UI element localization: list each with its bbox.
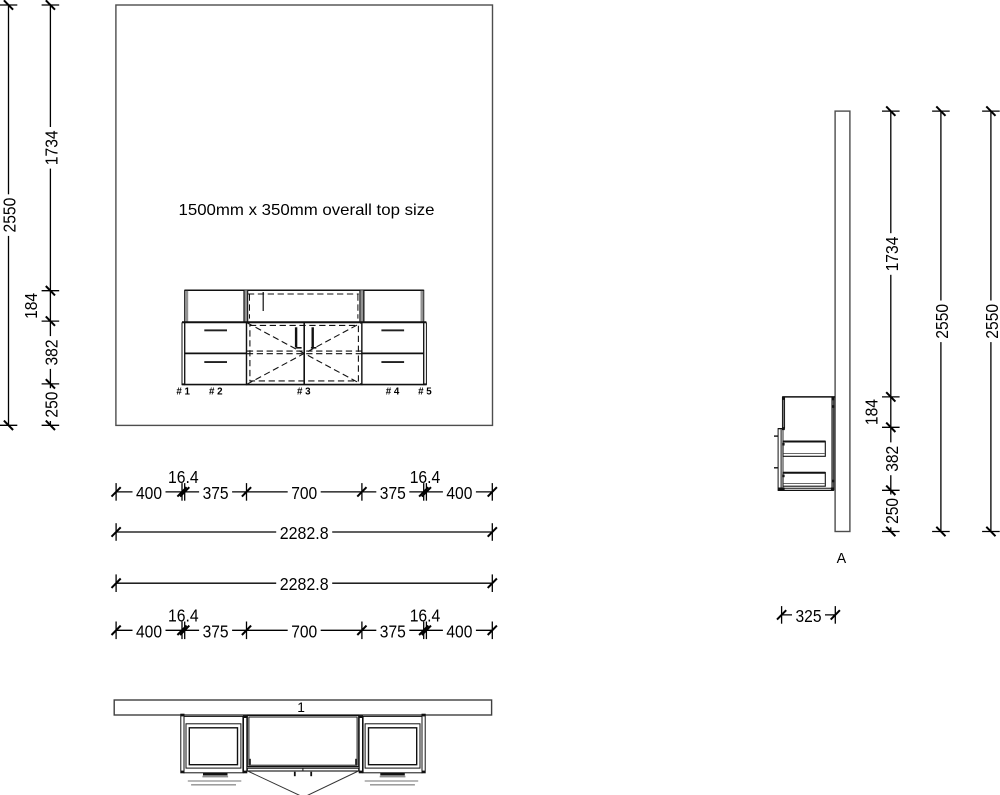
svg-text:16.4: 16.4 (168, 605, 199, 625)
svg-text:400: 400 (136, 621, 162, 641)
svg-text:# 2: # 2 (209, 386, 223, 397)
svg-text:# 5: # 5 (418, 386, 432, 397)
svg-text:400: 400 (446, 483, 472, 503)
svg-text:250: 250 (41, 391, 61, 417)
svg-text:375: 375 (380, 483, 406, 503)
svg-text:16.4: 16.4 (410, 605, 441, 625)
svg-text:700: 700 (291, 483, 317, 503)
svg-text:16.4: 16.4 (410, 467, 441, 487)
svg-text:700: 700 (291, 621, 317, 641)
svg-text:1734: 1734 (882, 236, 902, 271)
svg-text:A: A (837, 551, 847, 567)
svg-text:382: 382 (41, 340, 61, 366)
svg-text:375: 375 (380, 621, 406, 641)
svg-text:2550: 2550 (932, 304, 952, 339)
svg-text:1500mm x 350mm overall top siz: 1500mm x 350mm overall top size (179, 202, 435, 219)
svg-text:2282.8: 2282.8 (280, 523, 329, 543)
svg-text:375: 375 (203, 621, 229, 641)
svg-text:1734: 1734 (41, 130, 61, 165)
svg-text:382: 382 (882, 446, 902, 472)
svg-text:400: 400 (446, 621, 472, 641)
svg-text:# 4: # 4 (386, 386, 400, 397)
svg-text:250: 250 (882, 498, 902, 524)
svg-text:2282.8: 2282.8 (280, 574, 329, 594)
svg-text:16.4: 16.4 (168, 467, 199, 487)
svg-text:400: 400 (136, 483, 162, 503)
svg-text:184: 184 (862, 399, 882, 425)
svg-text:1: 1 (297, 700, 305, 715)
svg-text:184: 184 (21, 293, 41, 319)
svg-text:325: 325 (796, 606, 822, 626)
svg-text:2550: 2550 (982, 304, 1000, 339)
svg-text:2550: 2550 (0, 198, 20, 233)
svg-text:# 3: # 3 (297, 386, 311, 397)
svg-text:# 1: # 1 (176, 386, 190, 397)
svg-text:375: 375 (203, 483, 229, 503)
